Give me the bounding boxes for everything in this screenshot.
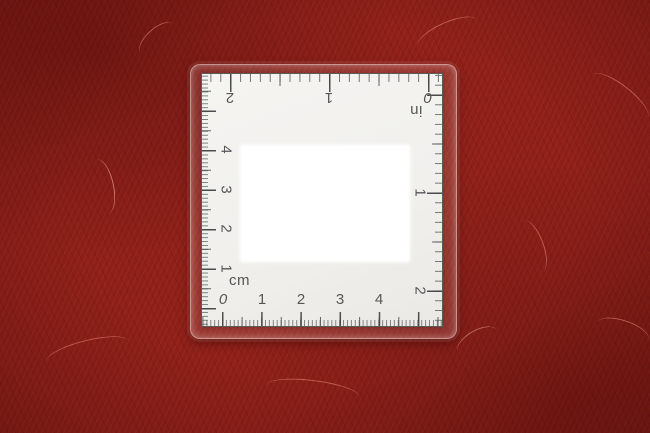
inch-label-2: 2 <box>221 89 239 106</box>
inch-label-right-1: 1 <box>412 184 429 202</box>
inch-label-right-2: 2 <box>412 282 429 300</box>
cm-label-4: 4 <box>370 291 388 308</box>
cm-label-left-3: 3 <box>218 181 235 199</box>
inch-unit-label: in <box>401 102 431 119</box>
cm-label-left-4: 4 <box>218 141 235 159</box>
laminate-pouch: 2 1 0 in 1 2 0 1 2 3 4 cm 1 2 3 4 <box>190 64 457 339</box>
ruler-card: 2 1 0 in 1 2 0 1 2 3 4 cm 1 2 3 4 <box>201 73 443 327</box>
cm-label-2: 2 <box>292 291 310 308</box>
cm-label-left-2: 2 <box>218 220 235 238</box>
photo-stage: 2 1 0 in 1 2 0 1 2 3 4 cm 1 2 3 4 <box>0 0 650 433</box>
cm-label-1: 1 <box>253 291 271 308</box>
cm-label-0: 0 <box>214 291 232 308</box>
cm-scale-bottom-ticks <box>202 306 442 326</box>
inch-label-1: 1 <box>320 89 338 106</box>
cm-label-3: 3 <box>331 291 349 308</box>
cm-label-left-1: 1 <box>218 260 235 278</box>
white-balance-patch <box>241 146 409 261</box>
cm-scale-left-ticks <box>202 74 220 326</box>
